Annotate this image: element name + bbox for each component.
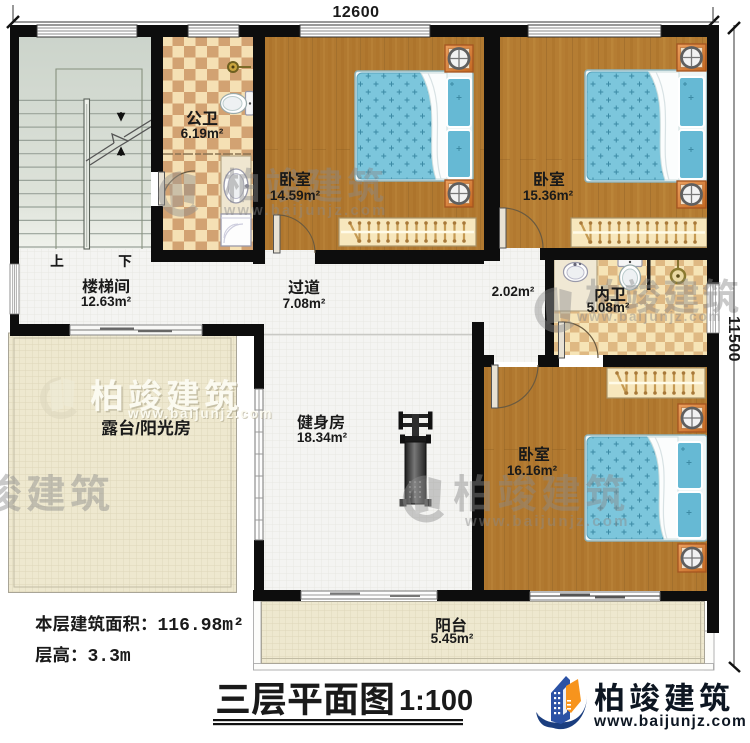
svg-text:下: 下 [118, 251, 132, 271]
svg-text:2.02m²: 2.02m² [492, 284, 535, 299]
svg-text:6.19m²: 6.19m² [181, 126, 224, 141]
svg-text:层高：3.3m: 层高：3.3m [35, 642, 131, 667]
svg-text:15.36m²: 15.36m² [523, 188, 574, 203]
svg-text:5.08m²: 5.08m² [587, 300, 630, 315]
svg-text:卧室: 卧室 [279, 166, 311, 190]
svg-text:11500: 11500 [725, 316, 742, 362]
svg-text:14.59m²: 14.59m² [270, 188, 321, 203]
svg-text:12.63m²: 12.63m² [81, 294, 132, 309]
svg-text:5.45m²: 5.45m² [431, 631, 474, 646]
svg-text:露台/阳光房: 露台/阳光房 [101, 414, 191, 439]
svg-text:12600: 12600 [333, 4, 380, 21]
svg-text:1:100: 1:100 [399, 685, 473, 717]
svg-text:16.16m²: 16.16m² [507, 463, 558, 478]
svg-text:过道: 过道 [288, 274, 320, 298]
svg-text:本层建筑面积：116.98m²: 本层建筑面积：116.98m² [35, 611, 244, 636]
svg-text:www.baijunjz.com: www.baijunjz.com [223, 203, 388, 219]
svg-text:18.34m²: 18.34m² [297, 430, 348, 445]
svg-text:柏竣建筑: 柏竣建筑 [0, 462, 114, 520]
svg-text:卧室: 卧室 [518, 441, 550, 465]
svg-text:三层平面图: 三层平面图 [215, 671, 395, 723]
svg-text:柏竣建筑: 柏竣建筑 [594, 673, 734, 718]
svg-text:www.baijunjz.com: www.baijunjz.com [593, 713, 747, 730]
svg-text:卧室: 卧室 [533, 166, 565, 190]
svg-text:7.08m²: 7.08m² [283, 296, 326, 311]
svg-text:www.baijunjz.com: www.baijunjz.com [464, 513, 630, 530]
svg-text:上: 上 [50, 251, 64, 271]
